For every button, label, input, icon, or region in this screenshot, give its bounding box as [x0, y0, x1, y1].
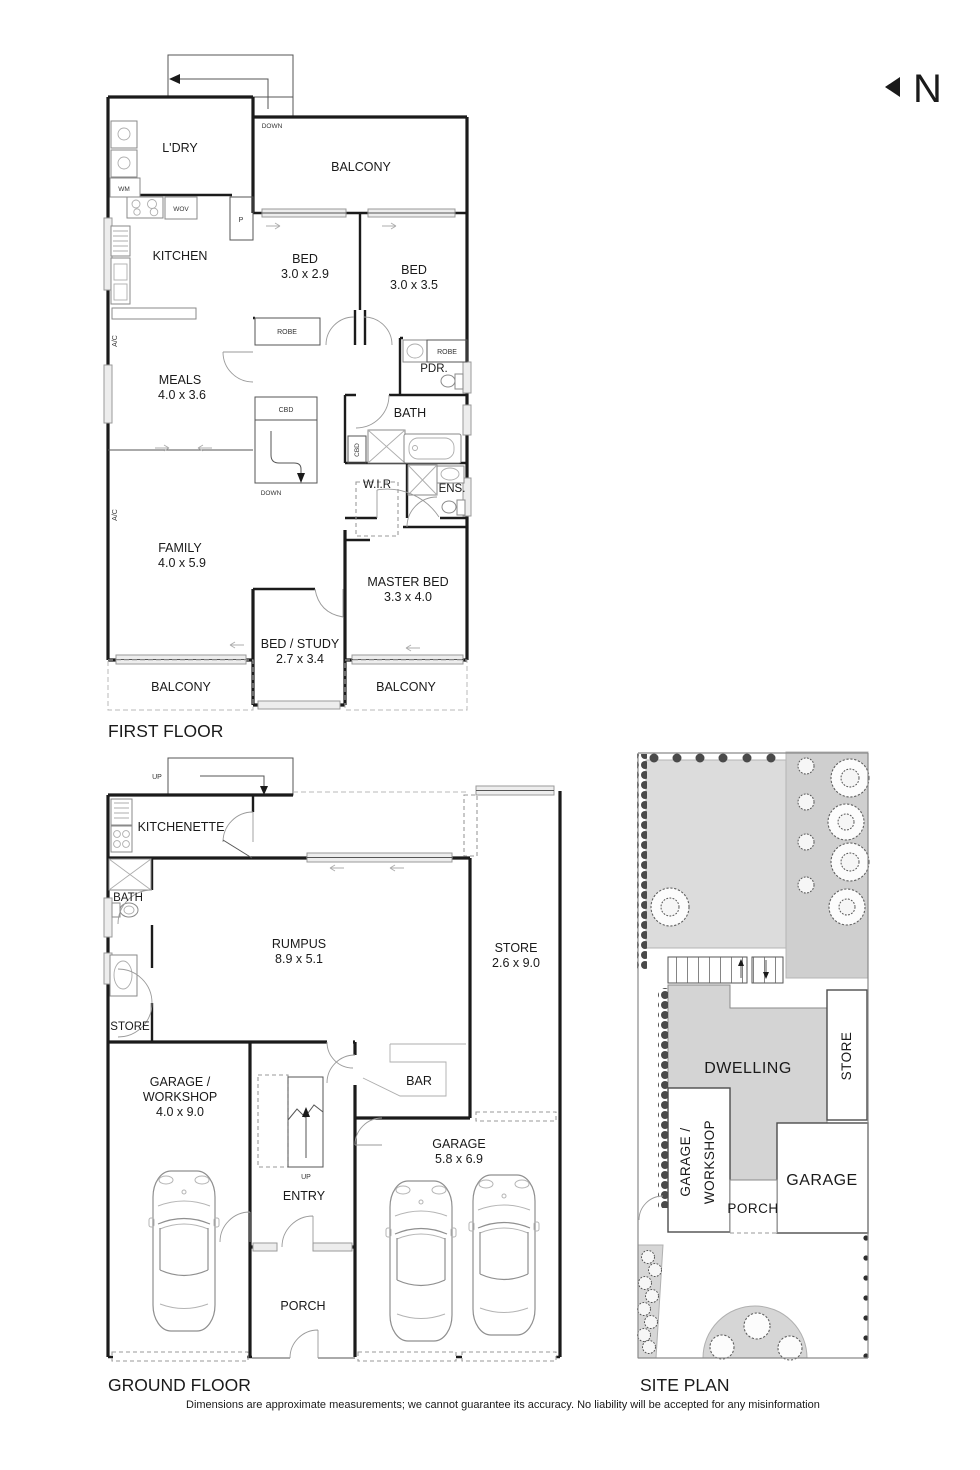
ground-floor-windows — [104, 786, 556, 1361]
bar-counter — [363, 1044, 466, 1096]
north-arrow-icon: N — [885, 67, 942, 111]
label-balcony-right: BALCONY — [376, 680, 436, 694]
label-gw2: WORKSHOP — [143, 1090, 217, 1104]
label-kitchen: KITCHEN — [153, 249, 208, 263]
bathtub-icon — [404, 434, 461, 463]
floorplan-page: N — [0, 0, 980, 1470]
label-entry: ENTRY — [283, 1189, 326, 1203]
label-bath-gf: BATH — [113, 892, 143, 904]
toilet-icon-ens — [442, 500, 465, 515]
opening-arrows-gf — [330, 865, 404, 871]
label-bedstudy-dims: 2.7 x 3.4 — [276, 652, 324, 666]
label-down-top: DOWN — [262, 123, 283, 130]
label-pantry: P — [239, 217, 244, 224]
label-ac-upper: A/C — [112, 335, 119, 347]
disclaimer-text: Dimensions are approximate measurements;… — [186, 1399, 820, 1411]
garage-door-right2 — [462, 1352, 556, 1361]
vanity-icon-bed2 — [403, 340, 427, 362]
label-garage-dims: 5.8 x 6.9 — [435, 1152, 483, 1166]
label-bed1: BED — [292, 252, 318, 266]
label-wm: WM — [118, 186, 130, 193]
cooktop-icon — [127, 197, 163, 218]
label-store-right-dims: 2.6 x 9.0 — [492, 956, 540, 970]
site-stairs — [668, 957, 783, 983]
garage-door-right1 — [358, 1352, 456, 1361]
toilet-icon-gf — [112, 903, 138, 917]
vanity-icon-ens — [437, 466, 464, 483]
label-master-dims: 3.3 x 4.0 — [384, 590, 432, 604]
first-floor-doors — [108, 317, 439, 617]
store-dashed-opening — [464, 795, 477, 856]
ground-floor-plan: UP KITCHENETTE BATH STORE RUMPUS 8.9 x 5… — [104, 758, 560, 1395]
fridge-sink-icon — [111, 226, 196, 319]
toilet-icon-pdr — [441, 374, 463, 389]
label-site-porch: PORCH — [727, 1201, 778, 1216]
label-bar: BAR — [406, 1074, 432, 1088]
label-store-left: STORE — [110, 1021, 150, 1033]
label-pdr: PDR. — [420, 363, 447, 375]
label-gw-dims: 4.0 x 9.0 — [156, 1105, 204, 1119]
label-rumpus-dims: 8.9 x 5.1 — [275, 952, 323, 966]
label-site-gw1: GARAGE / — [678, 1127, 693, 1196]
first-floor-title: FIRST FLOOR — [108, 721, 223, 741]
label-store-right: STORE — [495, 941, 538, 955]
label-meals: MEALS — [159, 373, 201, 387]
label-porch-gf: PORCH — [280, 1299, 325, 1313]
label-bedstudy: BED / STUDY — [261, 637, 340, 651]
label-meals-dims: 4.0 x 3.6 — [158, 388, 206, 402]
label-wir: W.I.R — [363, 479, 391, 491]
label-site-store: STORE — [839, 1032, 854, 1081]
label-balcony-left: BALCONY — [151, 680, 211, 694]
label-up-top: UP — [152, 774, 162, 781]
shower-icon-gf — [109, 859, 151, 890]
label-ldry: L'DRY — [162, 141, 198, 155]
label-cbd-bath: CBD — [354, 443, 361, 457]
site-plan: DWELLING GARAGE / WORKSHOP STORE GARAGE … — [637, 752, 869, 1395]
north-label: N — [913, 67, 942, 111]
label-rumpus: RUMPUS — [272, 937, 326, 951]
label-wov: WOV — [173, 206, 189, 213]
label-cbd-stair: CBD — [279, 407, 294, 414]
stairs-down-top — [168, 55, 293, 117]
shower-icon-ens — [408, 465, 437, 495]
label-bed2-dims: 3.0 x 3.5 — [390, 278, 438, 292]
shower-icon-bath — [368, 430, 405, 463]
label-family-dims: 4.0 x 5.9 — [158, 556, 206, 570]
floorplan-graphic: N — [0, 0, 980, 1470]
garage-door-left — [112, 1352, 248, 1361]
label-robe2: ROBE — [437, 349, 457, 356]
store-garage-dashed — [476, 1112, 556, 1121]
label-down-mid: DOWN — [261, 490, 282, 497]
stairs-up-mid — [258, 1075, 323, 1167]
label-up-mid: UP — [301, 1174, 311, 1181]
label-site-gw2: WORKSHOP — [702, 1120, 717, 1204]
label-garage-gf: GARAGE — [432, 1137, 486, 1151]
label-gw1: GARAGE / — [150, 1075, 211, 1089]
site-plan-title: SITE PLAN — [640, 1375, 729, 1395]
label-site-dwelling: DWELLING — [704, 1060, 792, 1077]
label-site-garage: GARAGE — [786, 1172, 857, 1189]
laundry-trough-icon-gf — [110, 955, 137, 996]
ground-floor-title: GROUND FLOOR — [108, 1375, 251, 1395]
shrub-row-dwelling — [658, 988, 668, 1208]
kitchenette-appliances — [111, 799, 132, 852]
label-family: FAMILY — [158, 541, 202, 555]
label-bed2: BED — [401, 263, 427, 277]
label-robe1: ROBE — [277, 329, 297, 336]
laundry-tub-icon — [111, 121, 137, 177]
label-ens: ENS. — [439, 483, 466, 495]
stairs-up-top — [168, 758, 293, 795]
first-floor-plan: DOWN L'DRY WM BALCONY WOV P KITCHEN BED … — [104, 55, 471, 741]
label-kitchenette: KITCHENETTE — [138, 820, 225, 834]
label-master: MASTER BED — [367, 575, 448, 589]
label-balcony-top: BALCONY — [331, 160, 391, 174]
label-bed1-dims: 3.0 x 2.9 — [281, 267, 329, 281]
label-ac-lower: A/C — [112, 509, 119, 521]
label-bath: BATH — [394, 406, 426, 420]
